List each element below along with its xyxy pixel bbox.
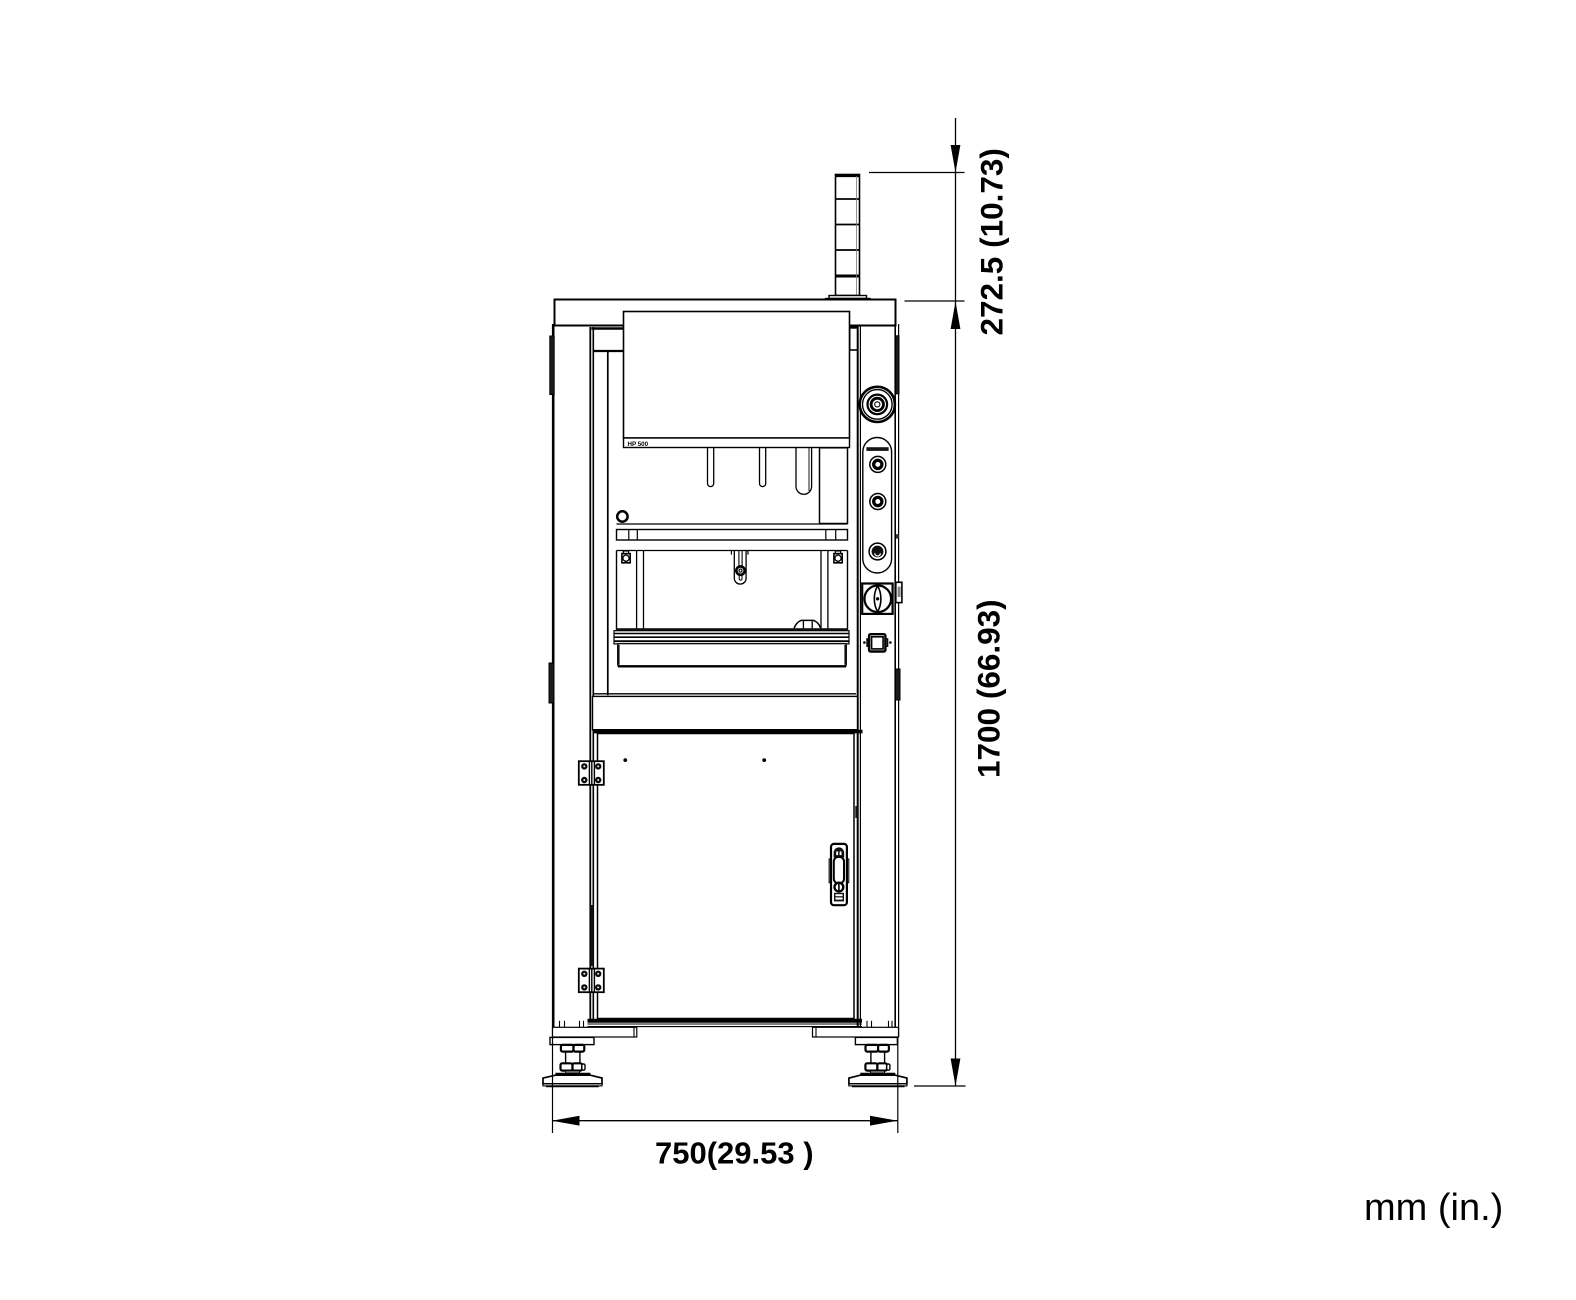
svg-text:272.5 (10.73): 272.5 (10.73) bbox=[974, 148, 1010, 335]
svg-text:1700 (66.93): 1700 (66.93) bbox=[971, 599, 1007, 778]
svg-text:750(29.53 ): 750(29.53 ) bbox=[655, 1136, 814, 1171]
svg-text:HP 500: HP 500 bbox=[628, 441, 649, 448]
svg-text:mm (in.): mm (in.) bbox=[1364, 1187, 1503, 1229]
